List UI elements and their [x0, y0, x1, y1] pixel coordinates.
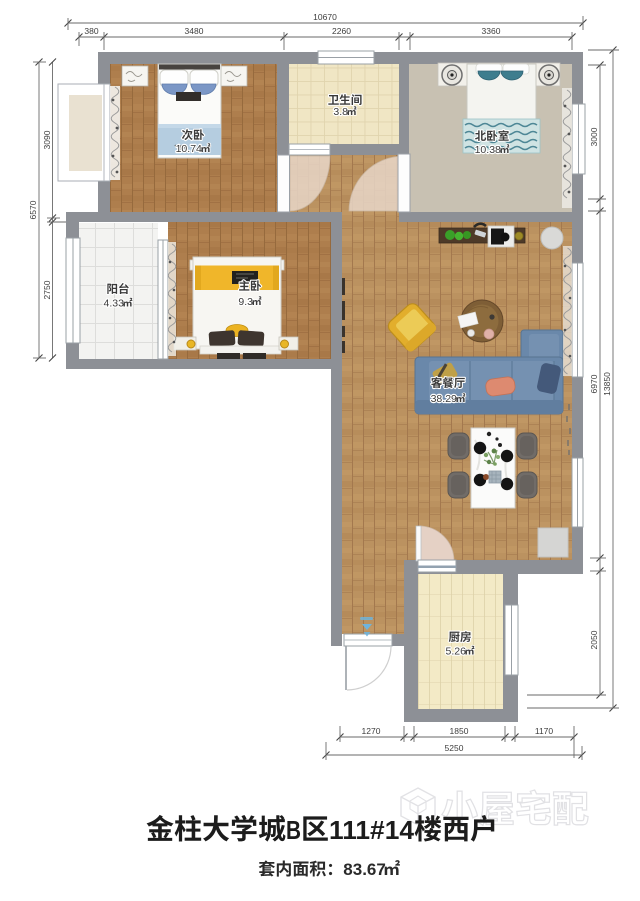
- svg-text:2050: 2050: [589, 630, 599, 649]
- svg-text:5250: 5250: [445, 743, 464, 753]
- svg-text:111#14: 111#14: [329, 815, 415, 845]
- svg-text:5.26: 5.26: [446, 646, 467, 658]
- svg-text:1850: 1850: [450, 726, 469, 736]
- svg-text:38.29: 38.29: [431, 393, 457, 405]
- svg-text:2750: 2750: [42, 280, 52, 299]
- svg-text:380: 380: [84, 26, 98, 36]
- svg-text:10670: 10670: [313, 12, 337, 22]
- svg-text:3480: 3480: [185, 26, 204, 36]
- svg-text:6570: 6570: [28, 200, 38, 219]
- svg-text:1170: 1170: [535, 726, 554, 736]
- svg-text:10.74: 10.74: [176, 143, 202, 155]
- svg-text:13850: 13850: [602, 372, 612, 396]
- svg-text:4.33: 4.33: [104, 298, 125, 310]
- svg-text:1270: 1270: [362, 726, 381, 736]
- svg-text:3.8: 3.8: [333, 106, 348, 118]
- svg-text:2260: 2260: [332, 26, 351, 36]
- svg-text:3000: 3000: [589, 127, 599, 146]
- svg-text:9.3: 9.3: [238, 296, 253, 308]
- svg-text:83.67: 83.67: [343, 860, 386, 879]
- svg-text:10.38: 10.38: [475, 144, 501, 156]
- svg-text:6970: 6970: [589, 374, 599, 393]
- svg-text:B: B: [286, 815, 301, 845]
- svg-text:3090: 3090: [42, 130, 52, 149]
- svg-text:3360: 3360: [482, 26, 501, 36]
